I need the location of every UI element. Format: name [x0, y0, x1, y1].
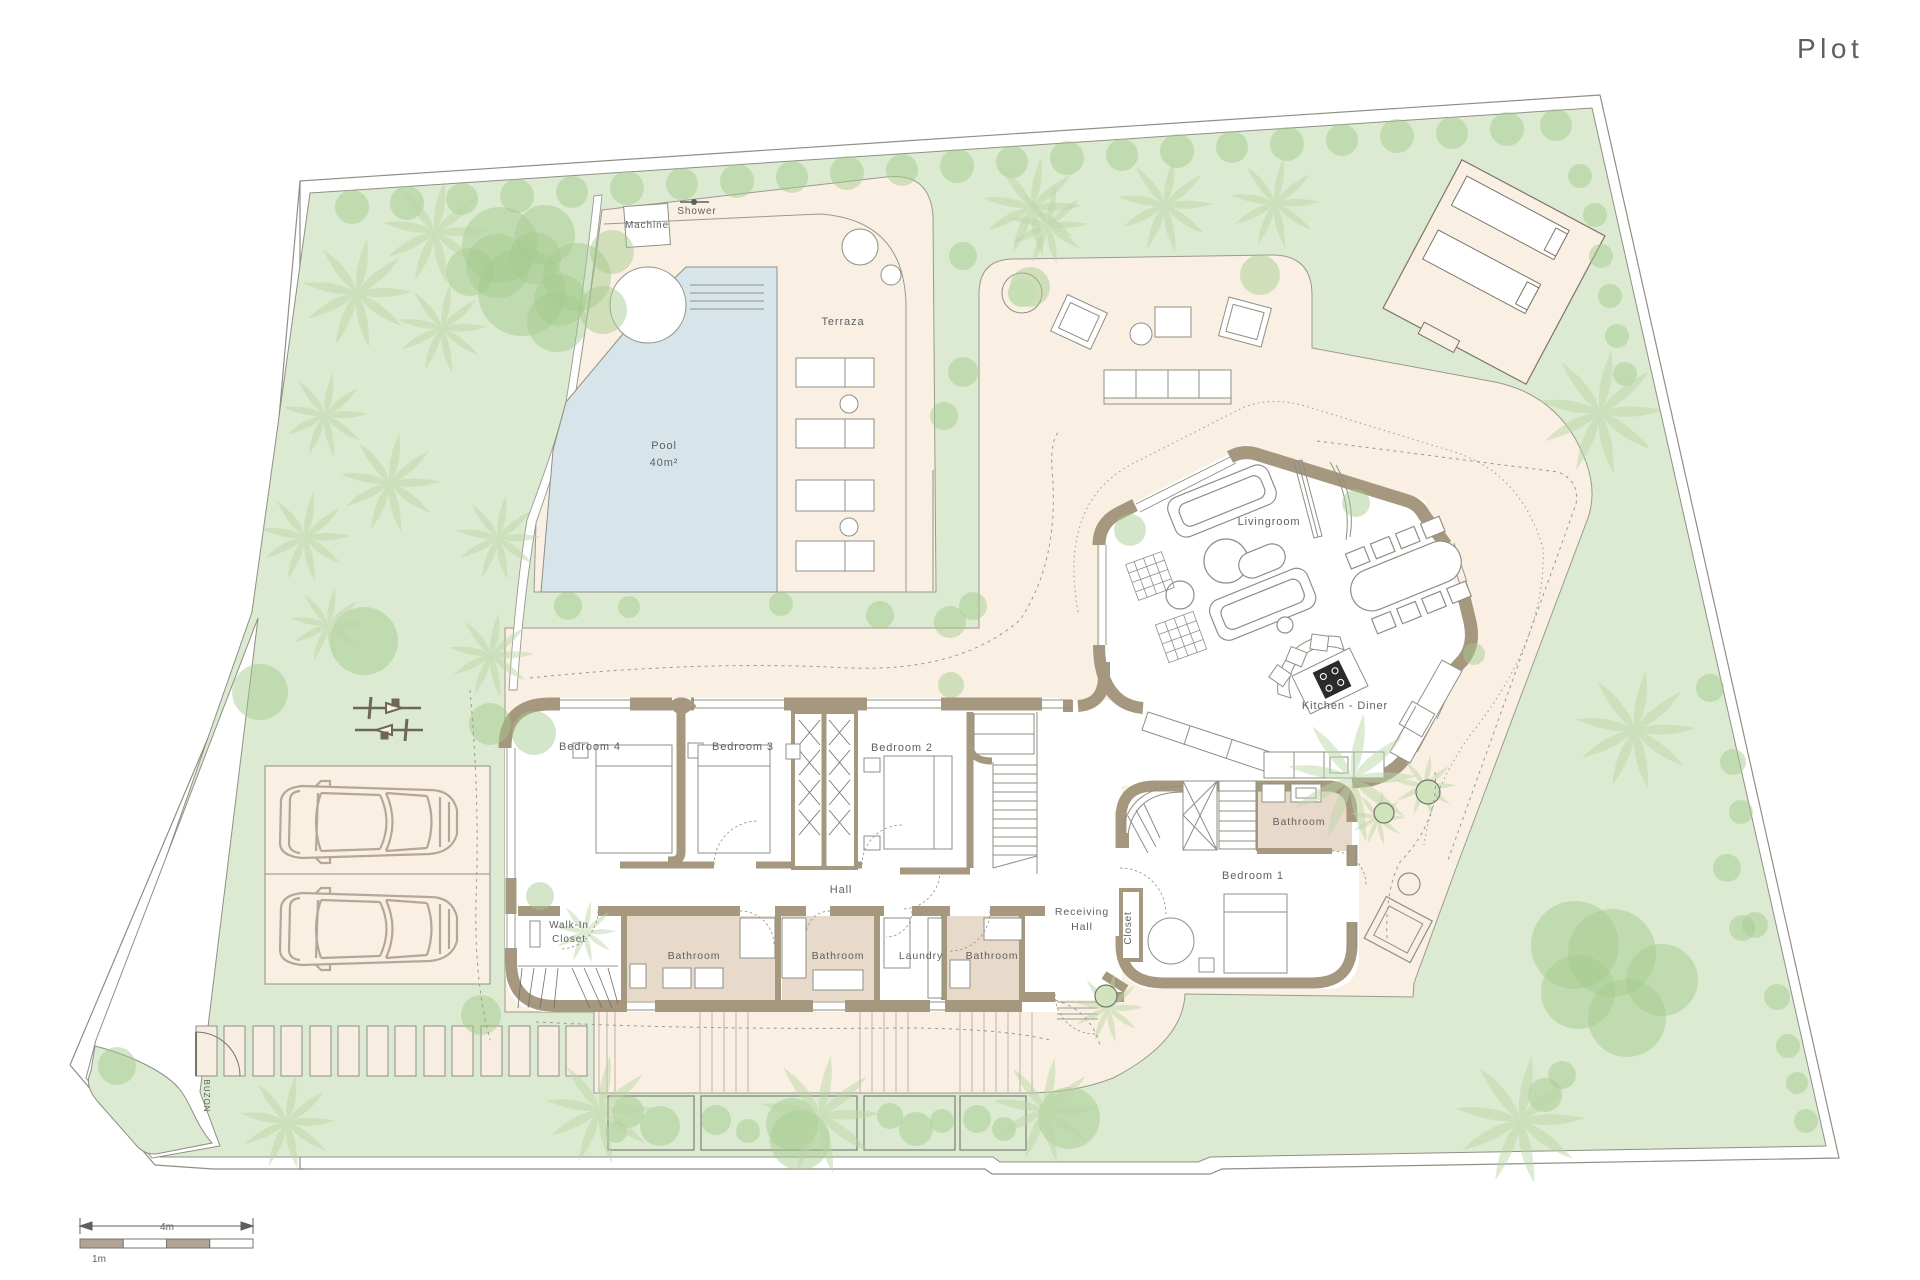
- svg-text:Hall: Hall: [830, 884, 853, 896]
- svg-text:Bathroom: Bathroom: [812, 950, 865, 962]
- svg-text:Plot: Plot: [1797, 33, 1863, 64]
- svg-text:Bedroom 4: Bedroom 4: [559, 741, 621, 753]
- svg-text:Shower: Shower: [677, 206, 716, 217]
- svg-text:Pool: Pool: [651, 440, 677, 452]
- svg-text:Machine: Machine: [625, 220, 669, 231]
- svg-text:Bathroom: Bathroom: [668, 950, 721, 962]
- svg-text:Walk-In: Walk-In: [549, 920, 589, 931]
- svg-text:Bathroom: Bathroom: [1273, 816, 1326, 828]
- svg-text:BUZON: BUZON: [202, 1080, 211, 1113]
- svg-text:Bedroom 3: Bedroom 3: [712, 741, 774, 753]
- svg-text:Laundry: Laundry: [899, 950, 943, 962]
- svg-text:Terraza: Terraza: [822, 316, 865, 328]
- svg-text:Bedroom 2: Bedroom 2: [871, 742, 933, 754]
- svg-text:1m: 1m: [92, 1254, 106, 1265]
- svg-text:Bedroom 1: Bedroom 1: [1222, 870, 1284, 882]
- svg-text:Bathroom: Bathroom: [966, 950, 1019, 962]
- svg-text:Closet: Closet: [552, 934, 586, 945]
- svg-text:Receiving: Receiving: [1055, 906, 1109, 918]
- svg-text:Kitchen - Diner: Kitchen - Diner: [1302, 700, 1388, 712]
- svg-text:Hall: Hall: [1071, 921, 1093, 933]
- svg-text:Livingroom: Livingroom: [1238, 516, 1301, 528]
- svg-text:40m²: 40m²: [650, 457, 679, 469]
- svg-text:Closet: Closet: [1123, 911, 1134, 944]
- svg-text:4m: 4m: [160, 1222, 174, 1233]
